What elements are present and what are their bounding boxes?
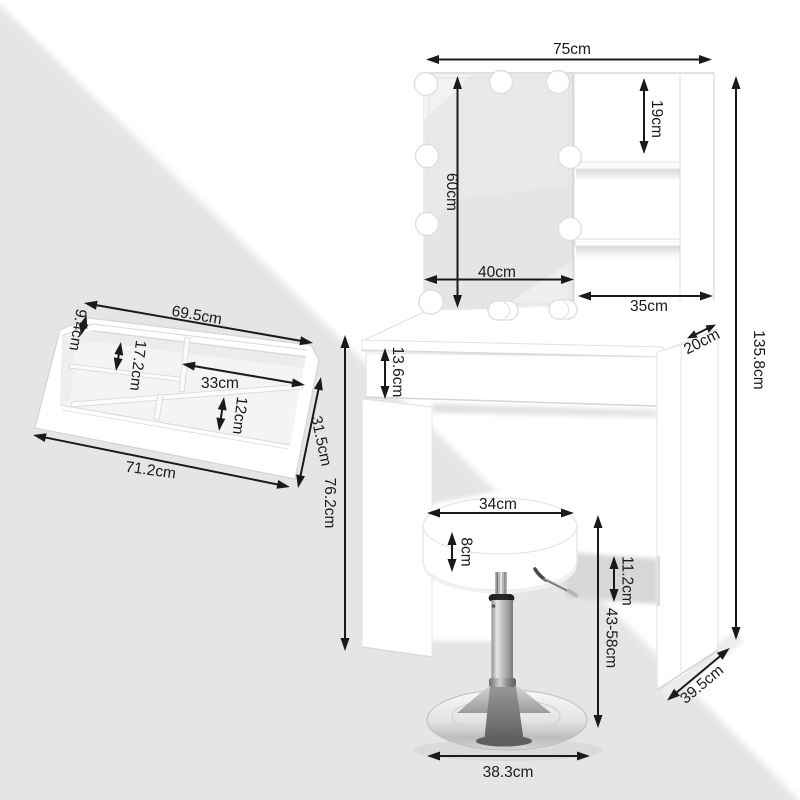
svg-text:135.8cm: 135.8cm bbox=[750, 330, 767, 389]
svg-text:11.2cm: 11.2cm bbox=[619, 556, 636, 606]
svg-text:8cm: 8cm bbox=[458, 537, 475, 566]
svg-text:75cm: 75cm bbox=[553, 41, 591, 58]
svg-text:35cm: 35cm bbox=[630, 298, 668, 315]
svg-text:34cm: 34cm bbox=[479, 496, 517, 513]
svg-text:33cm: 33cm bbox=[201, 375, 239, 392]
svg-text:38.3cm: 38.3cm bbox=[483, 764, 534, 781]
svg-text:76.2cm: 76.2cm bbox=[321, 478, 338, 529]
svg-text:40cm: 40cm bbox=[478, 264, 516, 281]
svg-text:19cm: 19cm bbox=[648, 100, 665, 138]
svg-text:60cm: 60cm bbox=[443, 173, 460, 211]
svg-text:13.6cm: 13.6cm bbox=[389, 347, 406, 398]
svg-text:43-58cm: 43-58cm bbox=[603, 608, 620, 668]
